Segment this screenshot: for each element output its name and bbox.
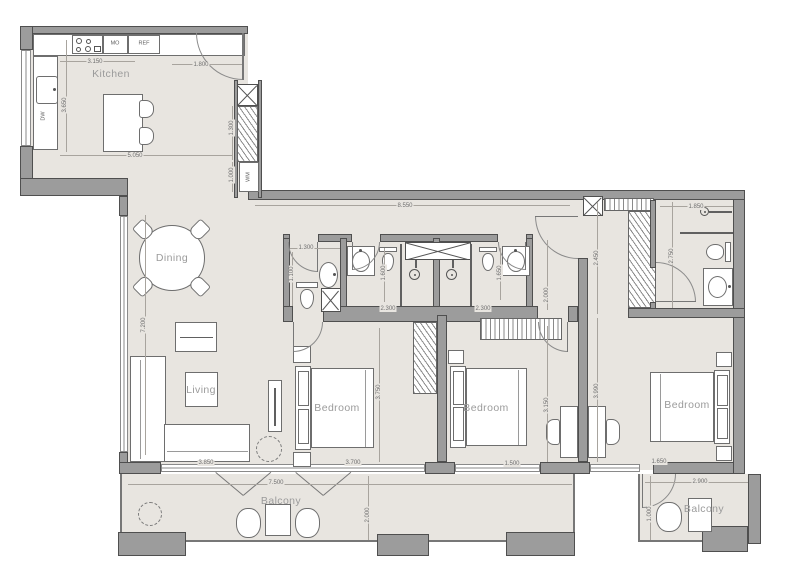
dimension-label: 1.600	[381, 264, 387, 281]
bed3-desk-chair	[606, 419, 620, 445]
wall-north-corridor	[248, 190, 745, 200]
tv-screen	[274, 388, 276, 426]
balcony-pier	[377, 534, 429, 556]
dim-line	[128, 484, 572, 485]
shower-dot-icon	[704, 211, 706, 213]
tap-icon	[333, 273, 336, 276]
wall-bathC-left-top	[650, 200, 656, 268]
wall-kitchen-left-bottom	[20, 146, 33, 180]
dimension-label: 5.050	[126, 153, 143, 159]
bed2-nightstand	[448, 350, 464, 364]
shaft-box-powder	[321, 288, 341, 312]
dimension-label: 8.550	[396, 203, 413, 209]
dimension-label: 3.750	[376, 383, 382, 400]
wall-south-2	[425, 462, 455, 474]
cabinet-line	[180, 337, 213, 338]
window-west	[120, 216, 128, 452]
bed1-closet	[413, 322, 437, 394]
balcony-pier	[506, 532, 575, 556]
bed3-nightstand	[716, 352, 732, 367]
room-label: Bedroom	[314, 402, 359, 414]
dimension-label: 1.100	[289, 265, 295, 282]
wall-bed-top-c	[568, 306, 578, 322]
island-chair	[139, 100, 154, 118]
appliance-label: REF	[139, 41, 150, 47]
sofa-chaise	[164, 424, 250, 462]
dimension-label: 2.300	[379, 306, 396, 312]
balcony-rail-bottom	[186, 540, 377, 542]
powder-door-leaf	[317, 242, 318, 272]
wall-bed1-bed2	[437, 315, 447, 462]
shaft-box-wing	[583, 196, 603, 216]
dimension-label: 3.850	[197, 460, 214, 466]
dimension-label: 7.200	[141, 316, 147, 333]
bathB-shower-screen	[470, 244, 472, 306]
dimension-label: 2.000	[365, 506, 371, 523]
sheet-line	[518, 370, 519, 445]
balcony-pier	[118, 532, 186, 556]
bathA-door-leaf	[352, 242, 353, 270]
dimension-label: 2.450	[594, 249, 600, 266]
sofa-seam	[167, 451, 248, 452]
dimension-label: 1.300	[297, 245, 314, 251]
tv-cabinet	[175, 322, 217, 352]
bathC-toilet-tank	[725, 242, 731, 262]
dimension-label: 1.000	[647, 505, 653, 522]
wall-south-1	[119, 462, 161, 474]
wall-west-top	[119, 196, 128, 216]
dimension-label: 2.000	[544, 286, 550, 303]
bed3-nightstand	[716, 446, 732, 461]
bed1-pillow	[298, 409, 309, 444]
balcony-chair	[295, 508, 320, 538]
wall-bed2-bed3	[578, 258, 588, 462]
dimension-label: 1.300	[229, 119, 235, 136]
wall-kitchen-left-top	[20, 26, 33, 50]
shower-arm-icon	[415, 260, 417, 268]
room-label: Dining	[156, 252, 188, 264]
bed2-desk-chair	[546, 419, 560, 445]
appliance-label: DW	[41, 111, 47, 120]
balcony-rail-bottom	[429, 540, 506, 542]
bathA-toilet-tank	[379, 247, 397, 252]
sofa-vertical	[130, 356, 166, 462]
bathA-shower-drain	[409, 269, 420, 280]
dimension-label: 3.150	[544, 396, 550, 413]
bathB-door-leaf	[525, 242, 526, 270]
wall-wing-bottom	[628, 308, 745, 318]
bathC-door-leaf	[656, 301, 696, 302]
balcony-chair	[236, 508, 261, 538]
dimension-label: 1.800	[192, 62, 209, 68]
bed3-pillow	[717, 375, 728, 406]
burner-icon	[76, 38, 82, 44]
plant-icon	[256, 436, 282, 462]
sheet-line	[660, 374, 661, 441]
bathB-shower-drain	[446, 269, 457, 280]
bed1-nightstand	[293, 452, 311, 467]
wall-powder-right	[340, 238, 347, 310]
dimension-label: 3.990	[594, 382, 600, 399]
window-kitchen-left	[21, 50, 31, 146]
balcony2-wall-right	[748, 474, 761, 544]
bed1-pillow	[298, 371, 309, 406]
room-label: Kitchen	[92, 68, 130, 80]
burner-icon	[76, 47, 81, 52]
bathC-shower-screen	[680, 232, 733, 234]
dimension-label: 7.500	[267, 480, 284, 486]
balcony2-chair	[656, 502, 682, 532]
window-south-bed3	[590, 464, 640, 472]
balcony2-rail-left	[638, 474, 640, 542]
duct-central	[405, 242, 471, 260]
room-label: Bedroom	[463, 402, 508, 414]
dimension-label: 2.300	[474, 306, 491, 312]
bed2-door-leaf	[567, 322, 568, 352]
wardrobe-top	[604, 198, 654, 211]
balcony2-rail-bottom	[640, 540, 706, 542]
dimension-label: 3.150	[86, 59, 103, 65]
floor-plan: KitchenDiningLivingBedroomBedroomBedroom…	[0, 0, 792, 584]
dimension-label: 2.900	[691, 479, 708, 485]
dim-line	[547, 326, 548, 462]
wall-kitchen-bottom	[20, 178, 128, 196]
wall-east	[733, 196, 745, 474]
faucet-icon	[53, 88, 56, 91]
burner-icon	[85, 46, 91, 52]
balcony-rail-left	[120, 474, 122, 534]
bed3-balcony-door-leaf	[642, 474, 643, 508]
room-label: Balcony	[684, 503, 724, 515]
bed3-pillow	[717, 408, 728, 439]
entry-door-leaf	[242, 33, 244, 80]
appliance-label: MO	[111, 41, 120, 47]
drain-dot-icon	[414, 274, 416, 276]
powder-toilet-tank	[296, 282, 318, 288]
kitchen-island	[103, 94, 143, 152]
dim-line	[60, 155, 232, 156]
bed2-pillow	[453, 371, 464, 405]
dimension-label: 2.750	[669, 247, 675, 264]
bathC-toilet-bowl	[706, 244, 724, 260]
window-south-bed2	[455, 464, 540, 472]
bathC-shower-arm	[709, 211, 732, 213]
room-label: Bedroom	[664, 399, 709, 411]
bathB-toilet-tank	[479, 247, 497, 252]
burner-icon	[86, 39, 91, 44]
tv-panel	[268, 380, 282, 432]
sofa-seam	[140, 360, 141, 459]
dimension-label: 1.650	[497, 264, 503, 281]
plant-icon	[138, 502, 162, 526]
bed1-door-leaf	[293, 322, 294, 352]
wing-door-leaf	[535, 216, 578, 217]
oven-icon	[94, 46, 101, 52]
room-label: Living	[186, 384, 216, 396]
shower-arm-icon	[452, 260, 454, 268]
bed2-desk	[560, 406, 578, 458]
drain-dot-icon	[451, 274, 453, 276]
dimension-label: 1.000	[229, 166, 235, 183]
island-chair	[139, 127, 154, 145]
dimension-label: 1.850	[687, 204, 704, 210]
balcony-rail-right	[573, 474, 575, 532]
balcony-table	[265, 504, 291, 536]
wall-bed-top-a	[283, 306, 293, 322]
dimension-label: 1.650	[650, 459, 667, 465]
wall-south-3	[540, 462, 590, 474]
stove	[72, 35, 103, 54]
sheet-line	[365, 370, 366, 447]
appliance-label: WM	[246, 172, 252, 182]
dimension-label: 3.650	[62, 96, 68, 113]
dimension-label: 1.500	[503, 461, 520, 467]
tap-icon	[728, 285, 731, 288]
bathA-shower-screen	[400, 244, 402, 306]
shaft-box-entry	[237, 84, 258, 106]
room-label: Balcony	[261, 495, 301, 507]
dimension-label: 3.700	[344, 460, 361, 466]
dim-line	[145, 215, 146, 455]
entry-closet	[237, 106, 258, 162]
bathC-sink	[708, 276, 727, 298]
